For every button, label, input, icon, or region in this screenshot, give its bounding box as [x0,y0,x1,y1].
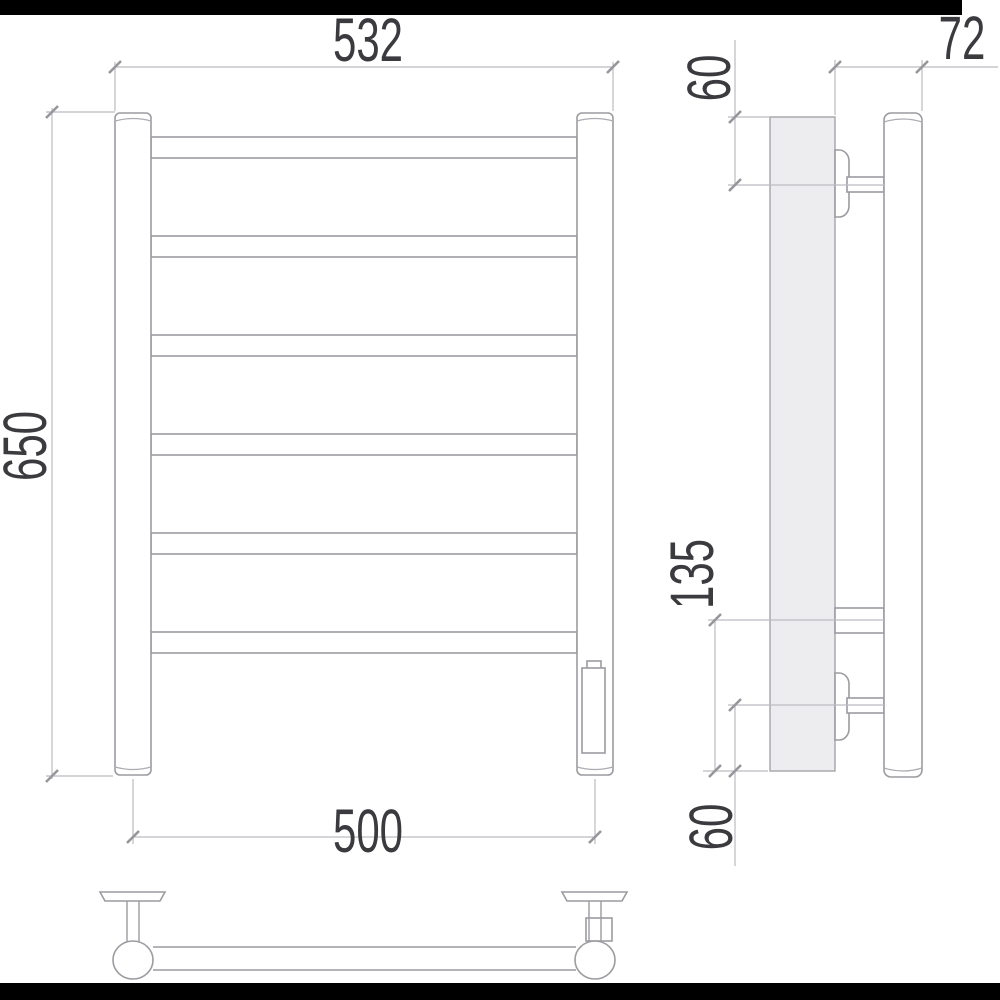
rail [151,533,577,554]
bottom-control-box [586,918,612,941]
rail [151,434,577,455]
upper-bracket [835,150,884,217]
dim-front-overall-height: 650 [0,106,115,782]
dim-front-height-label: 650 [0,411,60,481]
rail [151,632,577,653]
side-view: 72 60 135 60 [659,5,998,866]
rail [151,137,577,158]
left-post [115,113,151,775]
side-tube [884,113,922,777]
drawing-canvas: 532 650 500 [0,0,1000,1000]
lower-bracket [835,673,884,740]
dim-front-mounting-width: 500 [127,779,601,866]
dim-side-lower-span-label: 135 [659,539,727,609]
dim-side-top-offset-label: 60 [676,55,744,102]
bottom-view [100,892,627,979]
bottom-left-bracket [100,892,165,979]
bottom-right-bracket [562,892,627,979]
dim-front-overall-width: 532 [109,7,619,111]
dim-side-bottom-offset-label: 60 [678,804,746,851]
top-mask-bar [0,0,962,15]
rail [151,236,577,257]
rail [151,335,577,356]
control-box [582,661,605,753]
drawing-page: 532 650 500 [0,0,1000,1000]
dim-front-width-label: 532 [333,7,403,75]
dim-front-mounting-width-label: 500 [333,798,403,866]
dim-side-depth-label: 72 [939,5,986,73]
dim-side-depth: 72 [829,5,998,115]
bottom-mask-bar [0,983,1000,1000]
wall-plate [770,117,835,771]
front-rails [151,137,577,653]
front-view: 532 650 500 [0,7,619,866]
